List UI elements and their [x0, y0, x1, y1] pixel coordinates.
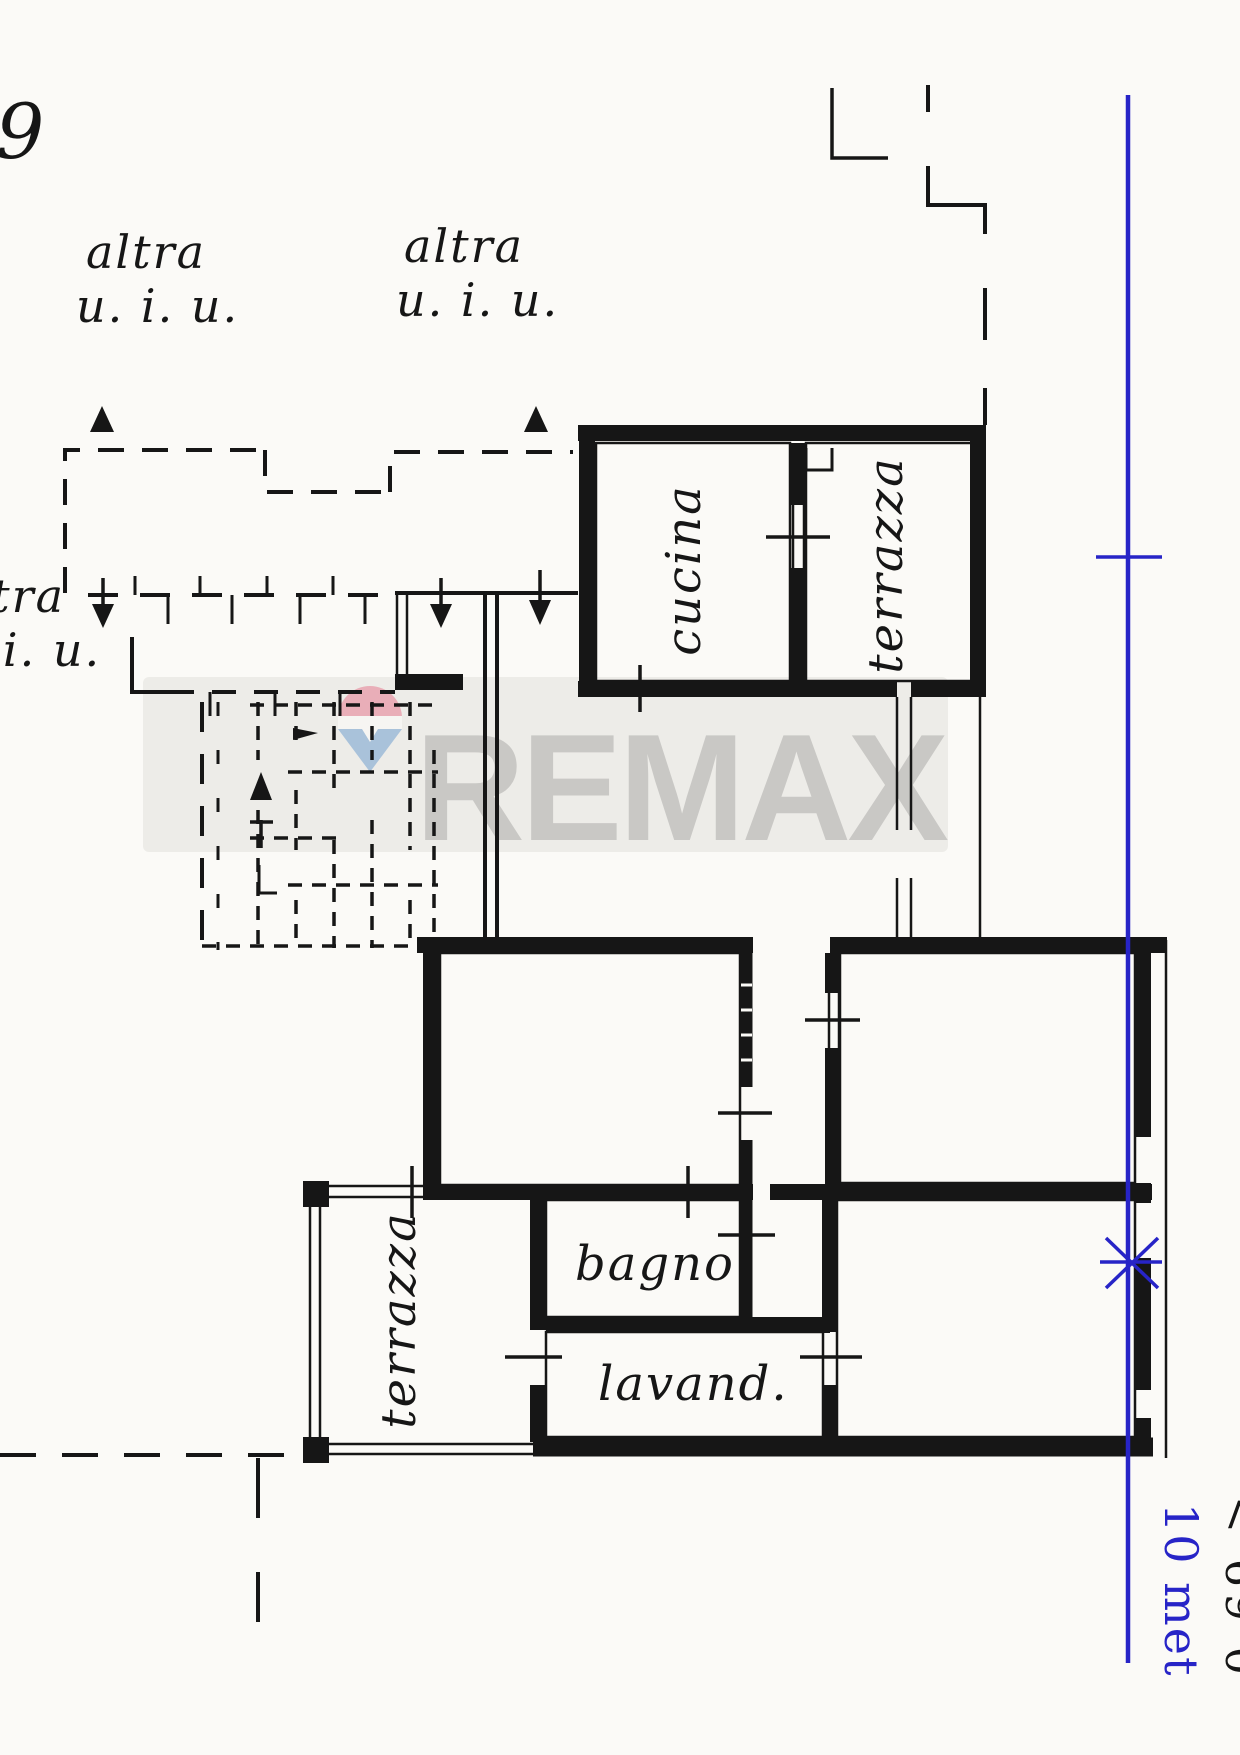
- arrow-up-icon: [90, 406, 114, 432]
- balloon-band: [338, 716, 402, 729]
- arrow-down-icon: [529, 570, 551, 625]
- measure-label: 10 met: [1154, 1503, 1208, 1677]
- floor-plan-page: REMAX: [0, 0, 1240, 1755]
- room-label-terrace-upper: terrazza: [858, 456, 914, 673]
- dash-tr-step: [928, 166, 985, 234]
- corner-mark-top-right: [832, 88, 888, 158]
- room-label-laundry: lavand.: [598, 1356, 789, 1412]
- unit-label-line: altra: [0, 569, 65, 623]
- edge-annotation: < 69 0: [1215, 1496, 1240, 1681]
- arrow-down-icon: [430, 578, 452, 628]
- room-label-kitchen: cucina: [656, 484, 712, 656]
- floor-plan-drawing: REMAX: [0, 0, 1240, 1755]
- room-outline-bottom-right: [837, 1200, 1135, 1437]
- door-ticks-above: [135, 576, 333, 595]
- unit-label-line: altra: [86, 225, 206, 279]
- unit-label-line: u. i. u.: [76, 279, 239, 333]
- stair-l-mark: [259, 865, 277, 893]
- sheet-number: 9: [0, 87, 46, 176]
- room-outline-right: [840, 953, 1135, 1183]
- room-label-terrace-lower: terrazza: [371, 1211, 427, 1428]
- unit-label-line: u. i. u.: [396, 273, 559, 327]
- unit-label-line: u. i. u.: [0, 623, 101, 677]
- arrow-down-icon: [92, 578, 114, 628]
- terrace-corner-block-bottom: [303, 1437, 329, 1463]
- unit-label-line: altra: [404, 219, 524, 273]
- arrow-up-icon: [524, 406, 548, 432]
- dashed-unit-outline-top-left: [65, 450, 573, 593]
- measure-cross-mark: [1100, 1238, 1162, 1288]
- terrace-step-notch: [806, 448, 832, 470]
- walls: [303, 425, 1167, 1463]
- door-ticks-below: [103, 595, 365, 624]
- room-outline-center: [440, 953, 740, 1185]
- room-label-bathroom: bagno: [575, 1236, 735, 1292]
- wall-thick: [395, 425, 1167, 1442]
